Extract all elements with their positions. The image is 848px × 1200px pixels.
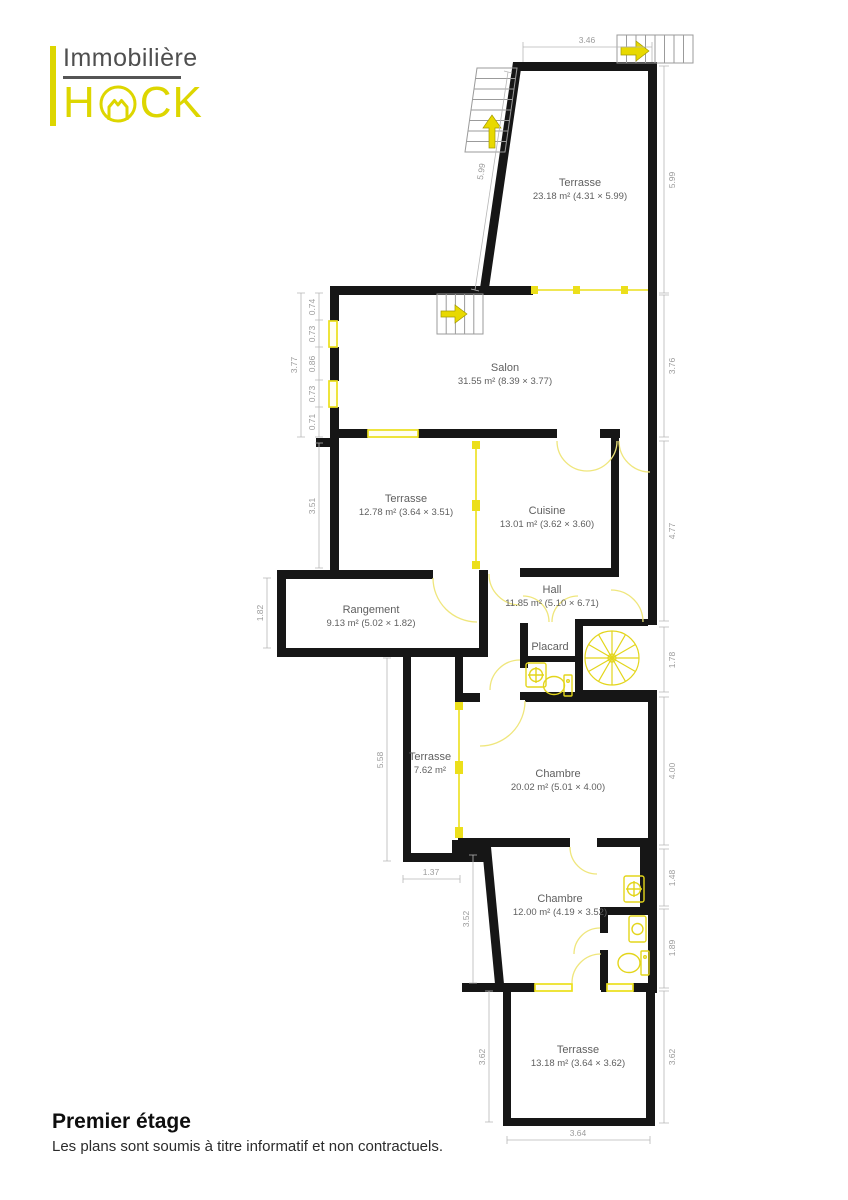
wall-rangement-left <box>277 570 286 657</box>
room-label-terrasse-top: Terrasse <box>559 177 601 189</box>
room-detail-hall: 11.85 m² (5.10 × 6.71) <box>505 598 599 609</box>
door-arc <box>619 441 650 472</box>
room-label-hall: Hall <box>543 584 562 596</box>
dim-salon-seg: 0.73 <box>307 385 317 402</box>
room-label-chambre1: Chambre <box>535 768 580 780</box>
wall-terraceB-left <box>503 991 511 1123</box>
glass-partitions <box>455 286 648 838</box>
room-label-rangement: Rangement <box>343 604 400 616</box>
stairs-direction-arrow <box>621 41 649 61</box>
wall-outer-right-mid <box>648 437 657 625</box>
window <box>535 984 572 991</box>
wall-terrasse-mid-left <box>330 438 339 570</box>
door-arc <box>490 660 520 690</box>
door-arc <box>480 701 525 746</box>
room-label-terrasse-bottom: Terrasse <box>557 1044 599 1056</box>
stairs-top-right <box>617 35 693 63</box>
window <box>368 430 418 437</box>
wc-fixtures <box>526 663 572 696</box>
floor-title: Premier étage <box>52 1110 443 1134</box>
room-label-chambre2: Chambre <box>537 893 582 905</box>
dim-top-width: 3.46 <box>579 35 596 45</box>
wall-rangement-bottom <box>277 648 488 657</box>
wall-terrasse-small-bottom <box>403 853 460 862</box>
room-detail-terrasse-small: 7.62 m² <box>414 765 446 776</box>
dimension-lines <box>263 42 669 1144</box>
room-label-salon: Salon <box>491 362 519 374</box>
room-label-terrasse-mid: Terrasse <box>385 493 427 505</box>
dim-chambre2-left: 3.52 <box>461 910 471 927</box>
wall-salon-top <box>330 286 533 295</box>
room-label-cuisine: Cuisine <box>529 505 566 517</box>
dim-right-bath: 1.89 <box>667 939 677 956</box>
room-detail-rangement: 9.13 m² (5.02 × 1.82) <box>327 618 416 629</box>
dim-right-cuisine: 4.77 <box>667 522 677 539</box>
dim-terrasse-mid: 3.51 <box>307 497 317 514</box>
dim-salon-total: 3.77 <box>289 356 299 373</box>
dim-right-seg: 1.48 <box>667 869 677 886</box>
dim-right-stair: 1.78 <box>667 651 677 668</box>
room-detail-salon: 31.55 m² (8.39 × 3.77) <box>458 376 552 387</box>
wall-cuisine-bottom <box>520 568 619 577</box>
wall-terrace-slanted <box>479 62 522 295</box>
dim-terrasse-small-w: 1.37 <box>423 867 440 877</box>
room-detail-chambre2: 12.00 m² (4.19 × 3.52) <box>513 907 607 918</box>
wall-rangement-right <box>479 570 488 657</box>
dim-terrasse-small-h: 5.58 <box>375 751 385 768</box>
dim-left-slant: 5.99 <box>475 162 488 180</box>
dim-right-terrace: 5.99 <box>667 171 677 188</box>
stairs-salon <box>437 294 483 334</box>
wall-terraceB-bottom <box>503 1118 655 1126</box>
wall-placard-right <box>575 619 583 698</box>
spiral-staircase <box>585 631 639 685</box>
dim-salon-seg: 0.86 <box>307 355 317 372</box>
dim-right-chambre1: 4.00 <box>667 762 677 779</box>
stairs-direction-arrow <box>441 305 467 323</box>
room-label-placard: Placard <box>531 641 568 653</box>
window <box>329 321 337 347</box>
door-arc <box>574 928 600 954</box>
wall-chambre2-left <box>482 847 504 984</box>
room-detail-chambre1: 20.02 m² (5.01 × 4.00) <box>511 782 605 793</box>
floor-plan-page: Immobilière H CK <box>0 0 848 1200</box>
door-arc <box>570 847 597 874</box>
toilet-icon <box>641 951 649 975</box>
dim-terraceB-width: 3.64 <box>570 1128 587 1138</box>
dim-salon-seg: 0.71 <box>307 413 317 430</box>
dim-right-salon: 3.76 <box>667 357 677 374</box>
dim-rangement: 1.82 <box>255 604 265 621</box>
room-detail-terrasse-mid: 12.78 m² (3.64 × 3.51) <box>359 507 453 518</box>
dim-salon-seg: 0.74 <box>307 298 317 315</box>
window <box>607 984 633 991</box>
room-detail-cuisine: 13.01 m² (3.62 × 3.60) <box>500 519 594 530</box>
door-arc <box>433 578 477 622</box>
floor-plan: 3.46 5.99 5.99 3.76 4.77 1.78 4.00 1.48 … <box>0 0 848 1200</box>
door-arc <box>572 954 601 983</box>
wall-outer-right-upper <box>648 62 657 437</box>
wall-cuisine-right <box>611 438 619 577</box>
room-detail-terrasse-top: 23.18 m² (4.31 × 5.99) <box>533 191 627 202</box>
window <box>329 381 337 407</box>
bathroom-fixtures <box>618 876 649 975</box>
wall-terraceB-right <box>646 991 655 1123</box>
footer: Premier étage Les plans sont soumis à ti… <box>52 1110 443 1155</box>
dim-salon-seg: 0.73 <box>307 325 317 342</box>
disclaimer-text: Les plans sont soumis à titre informatif… <box>52 1138 443 1155</box>
walls <box>277 62 657 1126</box>
door-arc <box>557 441 587 471</box>
room-detail-terrasse-bottom: 13.18 m² (3.64 × 3.62) <box>531 1058 625 1069</box>
wall-chambre2-right <box>640 838 657 908</box>
door-arc <box>611 590 643 622</box>
wall-rangement-top <box>277 570 433 579</box>
room-label-terrasse-small: Terrasse <box>409 751 451 763</box>
dim-terraceB-left: 3.62 <box>477 1048 487 1065</box>
dim-right-terraceB: 3.62 <box>667 1048 677 1065</box>
